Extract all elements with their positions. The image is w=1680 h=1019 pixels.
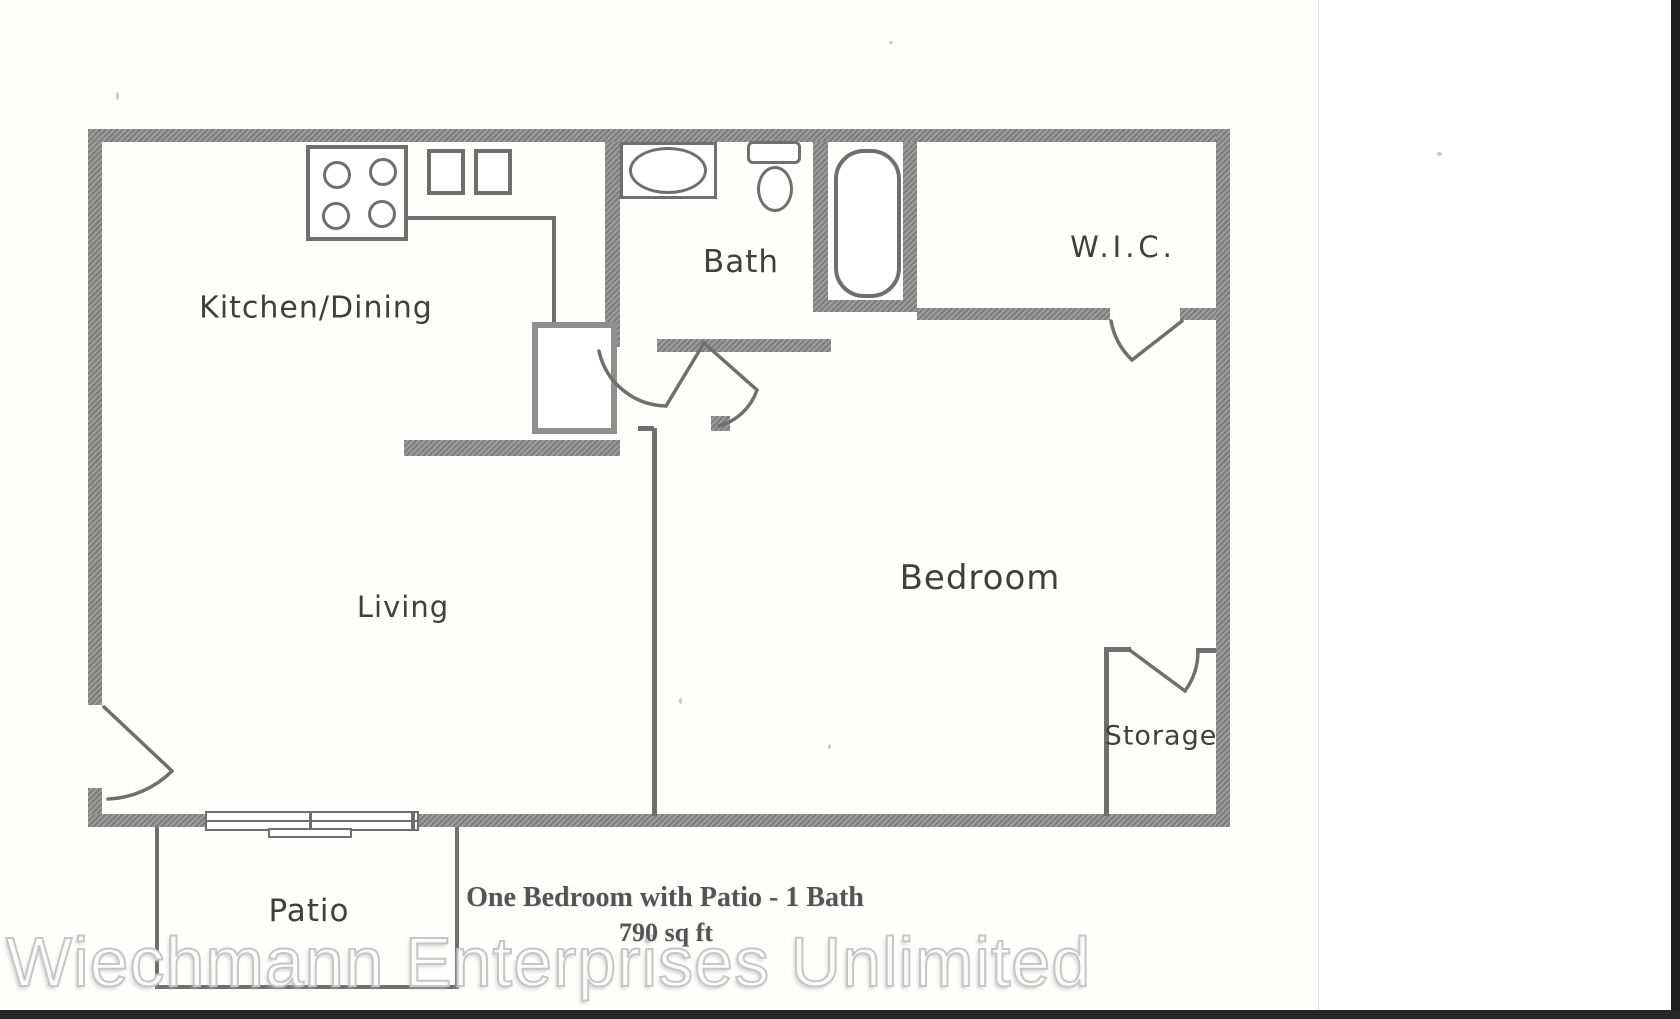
room-label-kitchen-dining: Kitchen/Dining	[199, 291, 433, 326]
scan-speck	[889, 41, 893, 44]
wall-left	[88, 129, 102, 705]
pantry-counter-icon	[532, 322, 617, 434]
sliding-door-rail-line	[207, 820, 417, 822]
stove-burner-icon	[368, 200, 396, 228]
toilet-bowl-icon	[757, 166, 793, 212]
scan-speck	[1437, 152, 1442, 156]
wall-tub-left	[813, 142, 828, 302]
stove-icon	[306, 145, 408, 241]
room-label-living: Living	[357, 590, 449, 624]
stove-burner-icon	[323, 161, 351, 189]
wall-kitchen-bath	[605, 142, 620, 347]
paper-edge-line	[1318, 0, 1319, 1010]
scanned-floor-plan: Kitchen/Dining Bath W.I.C. Living Bedroo…	[0, 0, 1680, 1019]
scan-edge-right	[1671, 0, 1680, 1019]
wall-bottom-left	[88, 814, 208, 827]
wall-bedroom-door-stub	[711, 416, 730, 431]
wall-bath-wic	[903, 142, 917, 312]
sliding-door-panel	[268, 828, 352, 838]
room-label-storage: Storage	[1105, 721, 1218, 752]
wall-tub-bottom	[813, 300, 917, 312]
stove-burner-icon	[322, 202, 350, 230]
wall-storage-top-stub	[1104, 647, 1131, 652]
scan-speck	[116, 92, 119, 100]
wall-right	[1216, 129, 1230, 827]
plan-area: 790 sq ft	[619, 918, 713, 948]
wall-bedroom-living-stub	[638, 426, 654, 431]
counter-edge-line	[406, 216, 556, 220]
toilet-tank-icon	[747, 141, 801, 164]
counter-edge-line	[552, 216, 556, 326]
bathroom-sink-icon	[629, 147, 707, 194]
room-label-bath: Bath	[703, 244, 779, 280]
scan-edge-bottom	[0, 1010, 1680, 1019]
room-label-wic: W.I.C.	[1070, 230, 1176, 264]
wall-kitchen-counter	[404, 440, 620, 456]
wall-wic-door-stub	[1180, 308, 1216, 320]
kitchen-sink-icon	[427, 149, 465, 195]
watermark-text: Wiechmann Enterprises Unlimited	[6, 922, 1091, 1002]
wall-bath-bottom	[657, 339, 831, 352]
plan-title: One Bedroom with Patio - 1 Bath	[466, 882, 864, 914]
scan-speck	[828, 744, 831, 749]
bathtub-icon	[834, 149, 901, 298]
wall-wic-bottom	[917, 308, 1110, 320]
room-label-bedroom: Bedroom	[900, 558, 1061, 598]
sliding-door-end-cap	[411, 812, 415, 830]
wall-top	[88, 129, 1230, 142]
kitchen-sink-icon	[474, 149, 512, 195]
wall-storage-right-stub	[1196, 648, 1216, 653]
scan-speck	[679, 698, 682, 704]
wall-bedroom-living	[652, 428, 657, 816]
stove-burner-icon	[369, 158, 397, 186]
